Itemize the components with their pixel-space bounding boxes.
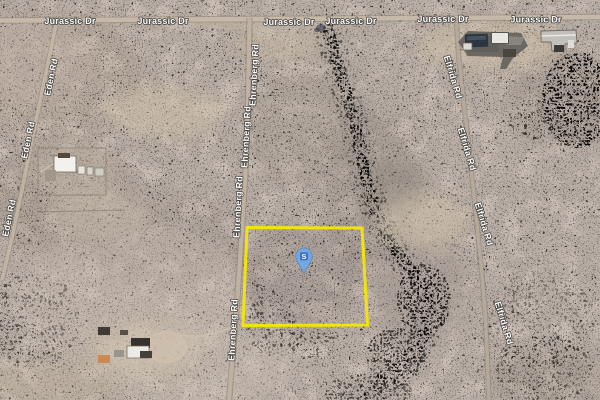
svg-text:S: S xyxy=(302,252,307,261)
svg-text:Jurassic Dr: Jurassic Dr xyxy=(44,16,96,26)
svg-text:Jurassic Dr: Jurassic Dr xyxy=(510,15,562,25)
svg-text:Jurassic Dr: Jurassic Dr xyxy=(263,17,315,27)
svg-text:Jurassic Dr: Jurassic Dr xyxy=(325,16,377,26)
svg-text:Jurassic Dr: Jurassic Dr xyxy=(417,14,469,24)
svg-text:Jurassic Dr: Jurassic Dr xyxy=(137,16,189,26)
